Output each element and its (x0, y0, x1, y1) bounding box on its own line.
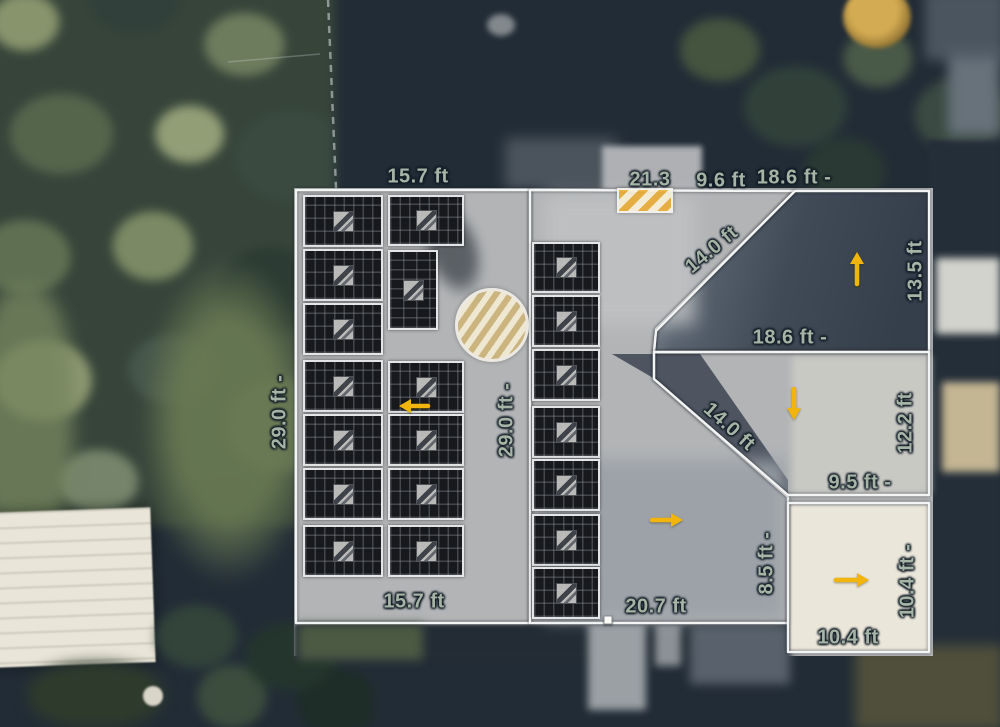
dimension-label: 13.5 ft (905, 240, 928, 301)
solar-design-canvas: 15.7 ft21.39.6 ft18.6 ft -14.0 ft13.5 ft… (0, 0, 1000, 727)
dimension-label: 15.7 ft (383, 591, 444, 614)
dimension-label: 21.3 (630, 169, 671, 192)
dimension-label: 14.0 ft (681, 221, 743, 278)
dimension-label: 8.5 ft - (756, 532, 779, 595)
vertex-handle[interactable] (604, 616, 613, 625)
dimension-label: 18.6 ft - (753, 327, 828, 350)
dimension-label: 9.5 ft - (829, 472, 892, 495)
dimension-label: 12.2 ft (895, 392, 918, 453)
dimension-label: 20.7 ft (625, 596, 686, 619)
dimension-label: 10.4 ft - (897, 544, 920, 619)
dimension-label: 14.0 ft (699, 398, 760, 456)
dimension-label: 29.0 ft - (496, 383, 519, 458)
dimension-label: 10.4 ft (817, 627, 878, 650)
dimension-label: 29.0 ft - (269, 375, 292, 450)
dimension-label: 18.6 ft - (757, 167, 832, 190)
dimension-label: 15.7 ft (387, 166, 448, 189)
dimension-label: 9.6 ft (696, 170, 746, 193)
dimension-labels-layer: 15.7 ft21.39.6 ft18.6 ft -14.0 ft13.5 ft… (0, 0, 1000, 727)
